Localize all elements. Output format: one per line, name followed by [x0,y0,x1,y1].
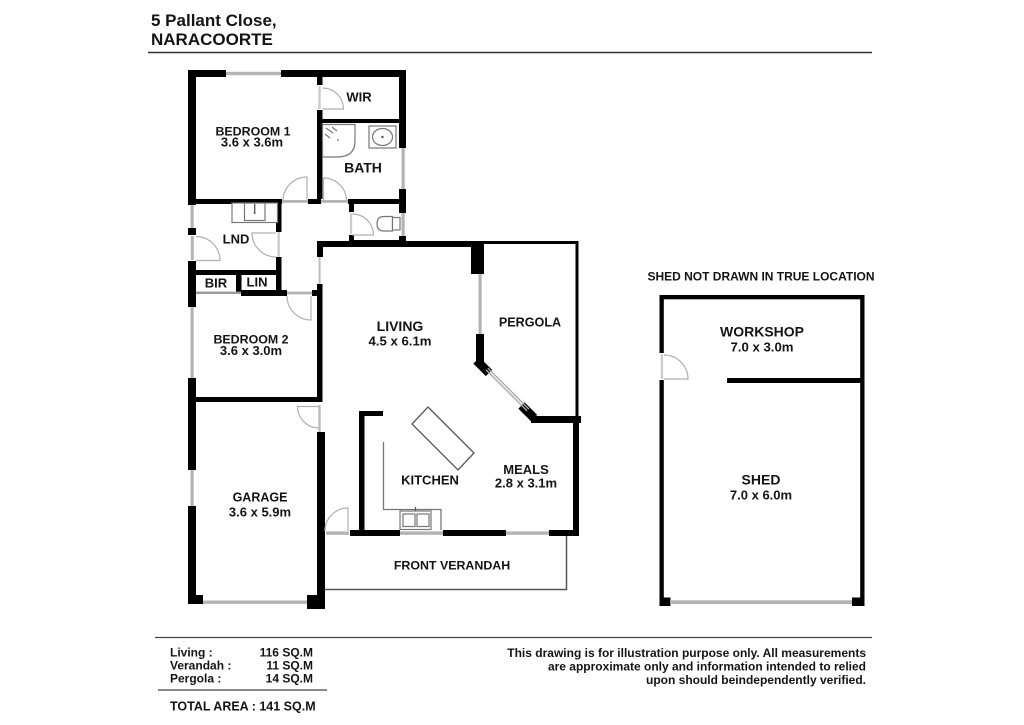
svg-text:Living :: Living : [170,646,213,660]
svg-text:SHED NOT DRAWN IN TRUE LOCATIO: SHED NOT DRAWN IN TRUE LOCATION [647,270,874,284]
svg-text:5 Pallant Close,: 5 Pallant Close, [151,11,277,30]
svg-text:upon should beindependently ve: upon should beindependently verified. [646,673,866,687]
svg-text:7.0 x 6.0m: 7.0 x 6.0m [730,488,792,503]
svg-text:Verandah :: Verandah : [170,659,231,673]
svg-text:3.6 x 3.6m: 3.6 x 3.6m [221,135,283,150]
svg-text:FRONT VERANDAH: FRONT VERANDAH [394,559,510,573]
svg-text:WORKSHOP: WORKSHOP [720,324,804,340]
svg-text:BIR: BIR [205,276,228,291]
svg-text:WIR: WIR [346,90,372,105]
svg-text:SHED: SHED [742,472,781,488]
svg-text:7.0 x 3.0m: 7.0 x 3.0m [730,340,793,355]
svg-text:Pergola :: Pergola : [170,672,221,686]
svg-text:GARAGE: GARAGE [233,491,288,505]
svg-text:PERGOLA: PERGOLA [499,316,561,330]
svg-text:4.5 x 6.1m: 4.5 x 6.1m [368,334,431,349]
svg-text:This drawing is for illustrati: This drawing is for illustration purpose… [507,646,866,660]
svg-text:LIVING: LIVING [377,318,424,334]
svg-text:116 SQ.M: 116 SQ.M [260,646,313,660]
svg-text:BATH: BATH [344,160,382,176]
svg-text:11 SQ.M: 11 SQ.M [266,659,313,673]
svg-text:2.8 x 3.1m: 2.8 x 3.1m [495,476,557,491]
svg-text:TOTAL AREA : 141 SQ.M: TOTAL AREA : 141 SQ.M [170,700,316,714]
svg-text:14 SQ.M: 14 SQ.M [266,672,313,686]
svg-text:3.6 x 3.0m: 3.6 x 3.0m [220,343,282,358]
svg-text:NARACOORTE: NARACOORTE [151,30,273,49]
svg-text:LIN: LIN [247,275,268,290]
svg-text:KITCHEN: KITCHEN [401,473,459,488]
svg-text:3.6 x 5.9m: 3.6 x 5.9m [229,505,291,520]
svg-text:are approximate only and infor: are approximate only and information int… [548,660,866,674]
svg-text:LND: LND [223,232,250,247]
